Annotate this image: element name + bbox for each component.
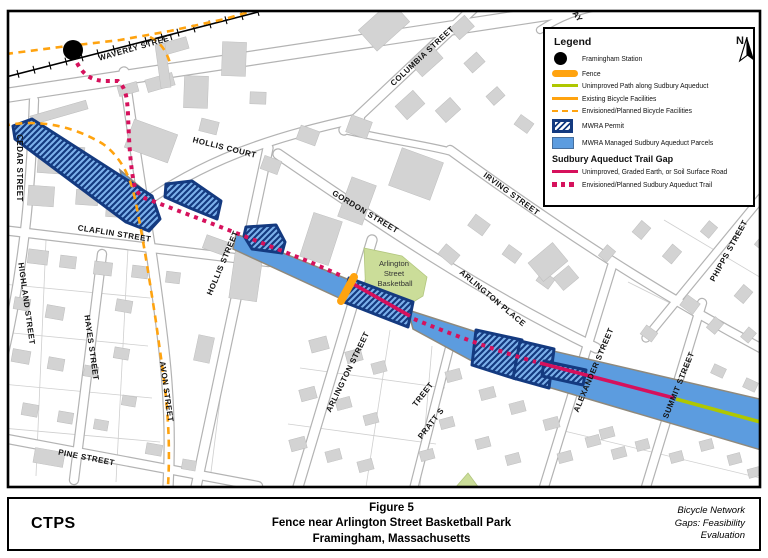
report-title: Bicycle Network Gaps: Feasibility Evalua…: [617, 505, 759, 543]
street-label-arlington-place: ARLINGTON PLACE: [458, 268, 528, 329]
legend-panel: N Legend Framingham Station Fence Unimpr…: [543, 27, 755, 207]
gap-unimproved-swatch-icon: [552, 170, 578, 174]
legend-item-existing-bike: Existing Bicycle Facilities: [552, 94, 746, 103]
planned-bike-swatch-icon: [552, 110, 578, 112]
legend-item-station: Framingham Station: [552, 52, 746, 65]
street-label-irving: IRVING STREET: [482, 171, 542, 218]
legend-item-gap-planned: Envisioned/Planned Sudbury Aqueduct Trai…: [552, 180, 746, 189]
map-figure: WAVERLY STREET CEDAR STREET TAY HOLLIS C…: [0, 0, 768, 558]
figure-location: Framingham, Massachusetts: [166, 532, 617, 547]
figure-number: Figure 5: [166, 501, 617, 516]
framingham-station-marker: [63, 40, 83, 60]
figure-title: Figure 5 Fence near Arlington Street Bas…: [166, 501, 617, 547]
north-arrow: N: [736, 35, 744, 47]
mwra-permit-swatch-icon: [552, 119, 573, 133]
legend-item-planned-bike: Envisioned/Planned Bicycle Facilities: [552, 106, 746, 115]
legend-item-label: MWRA Permit: [582, 121, 624, 130]
legend-item-gap-unimproved: Unimproved, Graded Earth, or Soil Surfac…: [552, 167, 746, 176]
title-block: CTPS Figure 5 Fence near Arlington Stree…: [7, 497, 761, 551]
legend-item-label: MWRA Managed Sudbury Aqueduct Parcels: [582, 138, 713, 147]
station-icon: [554, 52, 567, 65]
legend-item-label: Fence: [582, 69, 601, 78]
legend-item-mwra-permit: MWRA Permit: [552, 119, 746, 133]
legend-item-label: Envisioned/Planned Bicycle Facilities: [582, 106, 692, 115]
unimproved-path-swatch-icon: [552, 84, 578, 88]
legend-item-label: Unimproved, Graded Earth, or Soil Surfac…: [582, 167, 727, 176]
legend-title: Legend: [554, 36, 746, 48]
mwra-permit-parcel: [165, 181, 221, 219]
legend-item-fence: Fence: [552, 69, 746, 78]
fence-swatch-icon: [552, 70, 578, 77]
legend-item-label: Unimproved Path along Sudbury Aqueduct: [582, 81, 708, 90]
street-label-cedar: CEDAR STREET: [15, 134, 24, 202]
legend-item-label: Existing Bicycle Facilities: [582, 94, 656, 103]
gap-planned-swatch-icon: [552, 182, 574, 187]
existing-bike-swatch-icon: [552, 97, 578, 100]
north-arrow-icon: [736, 35, 758, 63]
legend-item-mwra-parcels: MWRA Managed Sudbury Aqueduct Parcels: [552, 137, 746, 149]
legend-item-label: Framingham Station: [582, 54, 642, 63]
figure-caption: Fence near Arlington Street Basketball P…: [166, 516, 617, 531]
legend-item-unimproved-path: Unimproved Path along Sudbury Aqueduct: [552, 81, 746, 90]
legend-subheading: Sudbury Aqueduct Trail Gap: [552, 154, 746, 164]
mwra-parcels-swatch-icon: [552, 137, 574, 149]
agency-logo-text: CTPS: [9, 515, 166, 533]
legend-item-label: Envisioned/Planned Sudbury Aqueduct Trai…: [582, 180, 712, 189]
